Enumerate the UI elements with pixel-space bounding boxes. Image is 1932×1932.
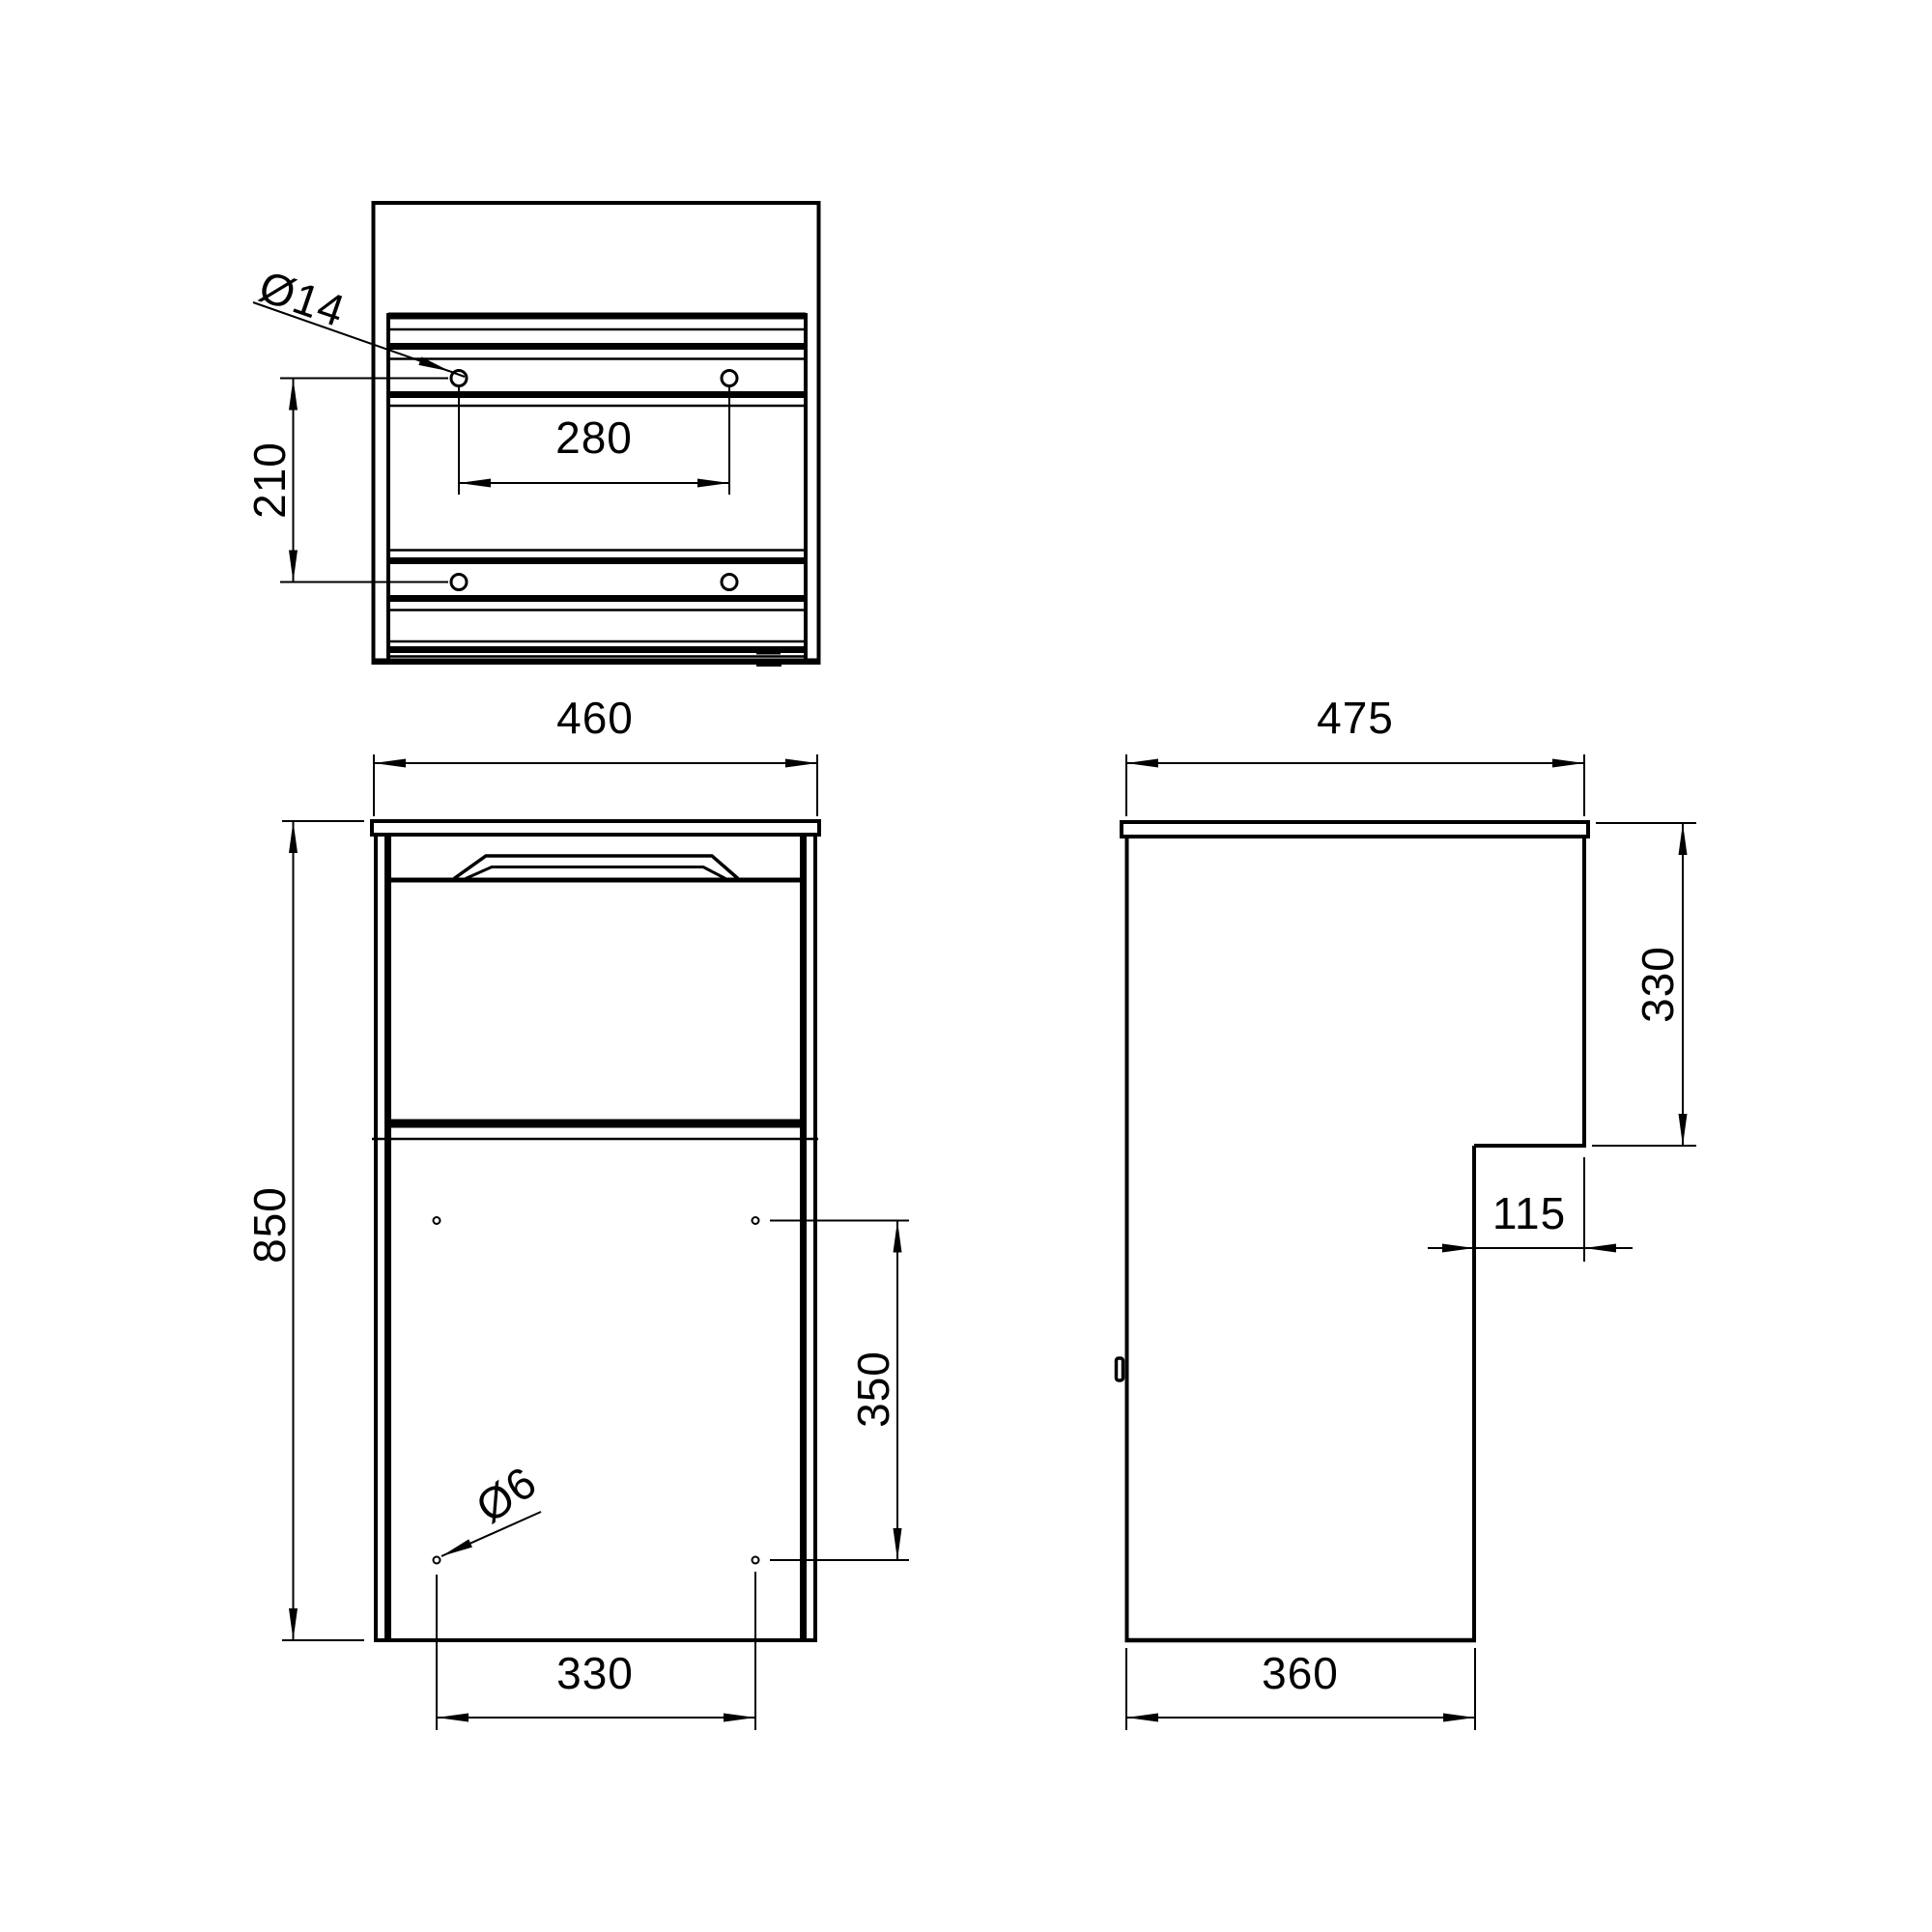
parcel-slot-lip-inner: [466, 867, 725, 879]
dimension-330-front: 330: [437, 1572, 755, 1730]
side-lid: [1122, 822, 1588, 837]
dimension-210: 210: [244, 379, 448, 582]
dim-label-350: 350: [848, 1350, 898, 1428]
side-view: 475 330 115 360: [1117, 693, 1697, 1730]
screw-hole: [434, 1217, 440, 1224]
dim-label-115: 115: [1492, 1188, 1566, 1238]
mounting-hole: [722, 371, 737, 386]
screw-hole: [434, 1557, 440, 1564]
dimension-hole-diameter-6: Ø6: [441, 1457, 546, 1556]
dim-label-475: 475: [1317, 693, 1394, 743]
mounting-hole: [722, 575, 737, 590]
hinge-detail: [1117, 1358, 1123, 1380]
dimension-350: 350: [770, 1221, 909, 1561]
dimension-330-side: 330: [1592, 823, 1696, 1146]
screw-hole: [753, 1557, 759, 1564]
dim-label-850: 850: [244, 1186, 295, 1264]
dim-label-360: 360: [1262, 1648, 1339, 1698]
dim-label-330-side: 330: [1633, 946, 1683, 1023]
technical-drawing: Ø14 210 280: [0, 0, 1932, 1932]
screw-hole: [753, 1217, 759, 1224]
dimension-115: 115: [1428, 1157, 1633, 1262]
dim-label-460: 460: [556, 693, 634, 743]
lid: [372, 821, 819, 835]
mounting-hole: [451, 575, 467, 590]
dimension-850: 850: [244, 821, 364, 1640]
dimension-460: 460: [374, 693, 817, 816]
drawing-page: Ø14 210 280: [0, 0, 1932, 1932]
dimension-360: 360: [1126, 1648, 1475, 1730]
rear-view: Ø14 210 280: [244, 203, 819, 667]
latch-detail: [756, 649, 781, 655]
dim-label-210: 210: [244, 441, 295, 519]
dimension-475: 475: [1126, 693, 1584, 816]
dim-label-hole-diameter: Ø6: [467, 1457, 546, 1533]
dim-label-330-front: 330: [556, 1648, 634, 1698]
dimension-280: 280: [459, 387, 729, 495]
front-view: Ø6 460 850 350 330: [244, 693, 909, 1730]
dim-label-hole-diameter: Ø14: [253, 261, 352, 336]
dim-label-280: 280: [555, 412, 633, 463]
latch-detail: [756, 660, 781, 667]
